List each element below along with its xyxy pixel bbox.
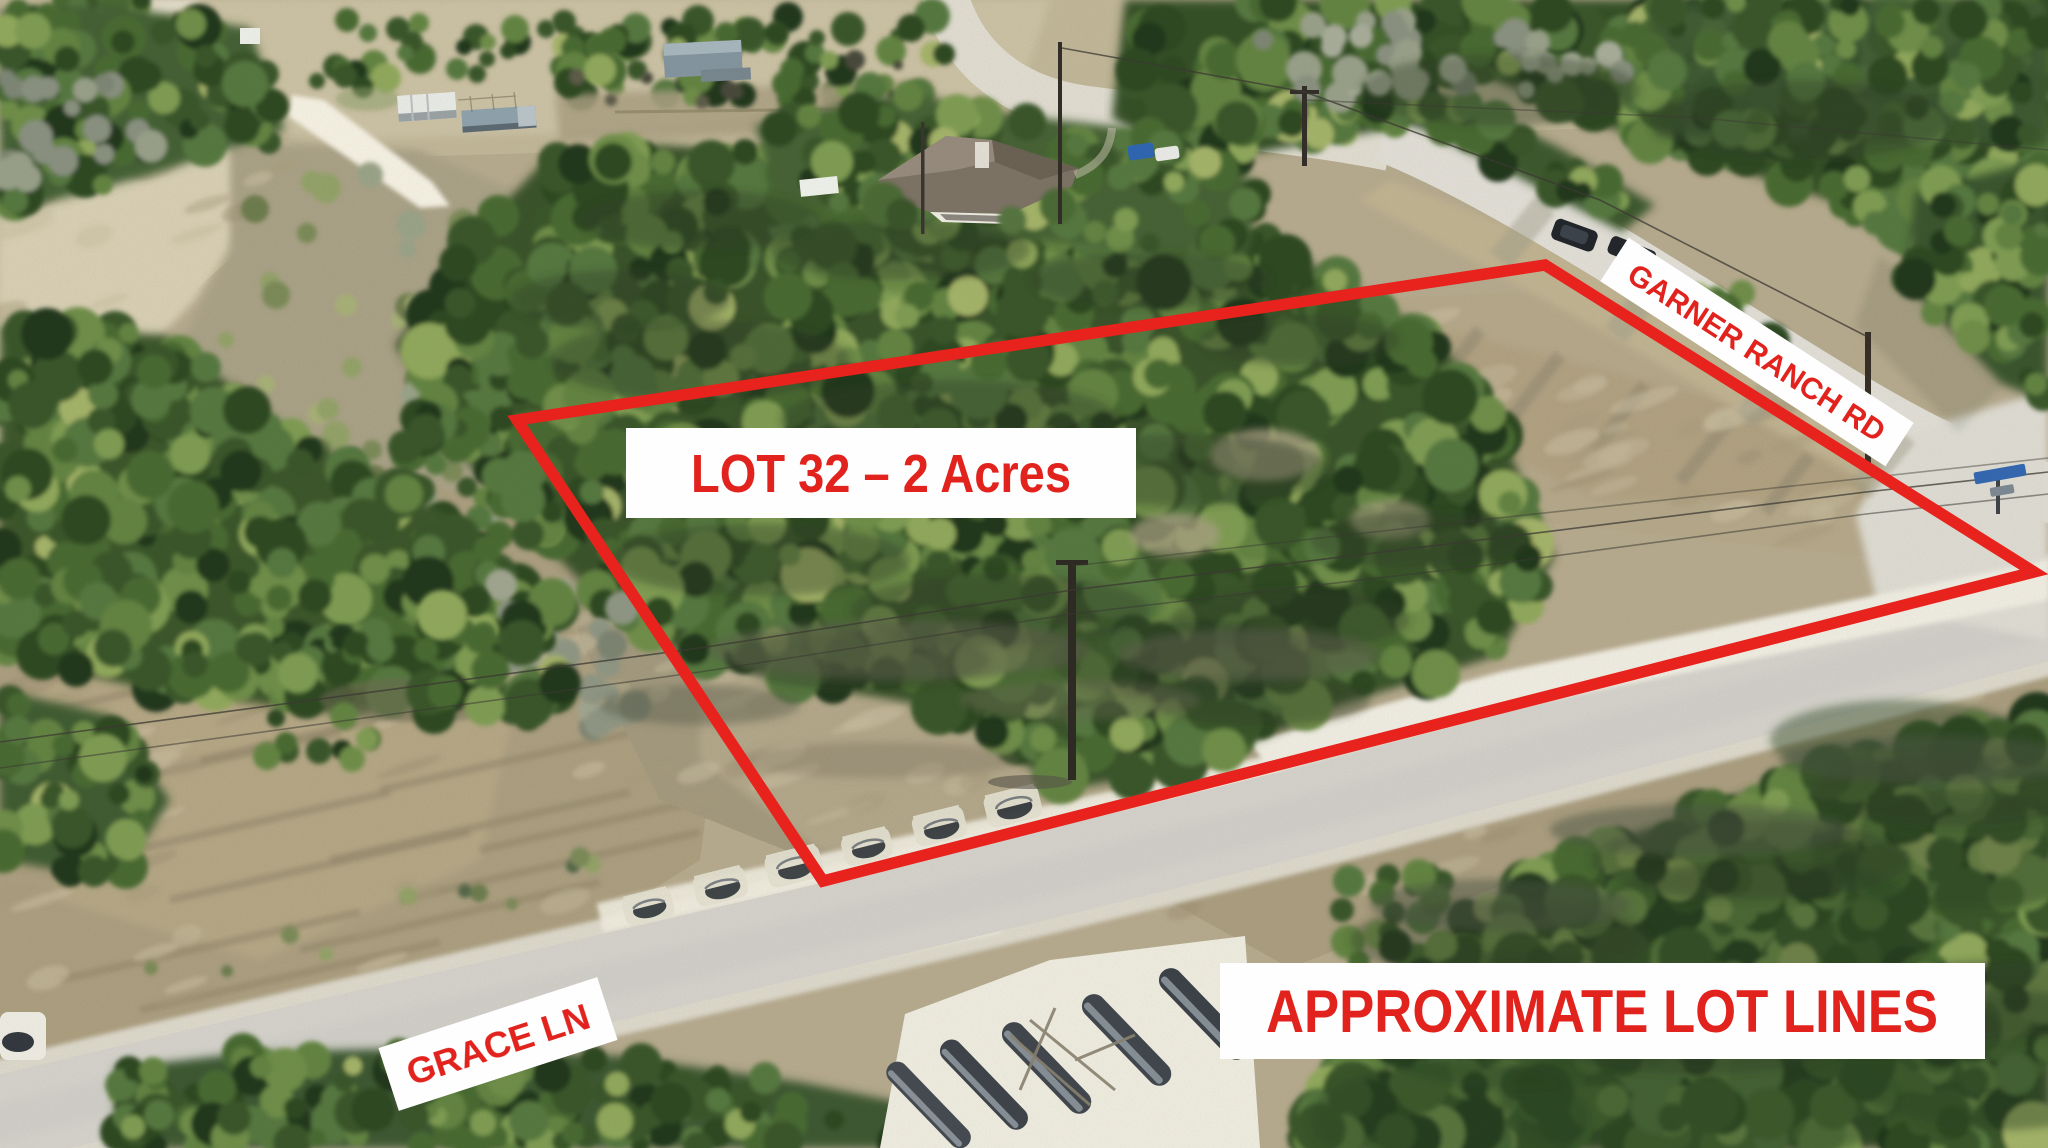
svg-text:APPROXIMATE LOT LINES: APPROXIMATE LOT LINES — [1266, 978, 1938, 1045]
svg-text:LOT 32 – 2 Acres: LOT 32 – 2 Acres — [691, 444, 1071, 504]
